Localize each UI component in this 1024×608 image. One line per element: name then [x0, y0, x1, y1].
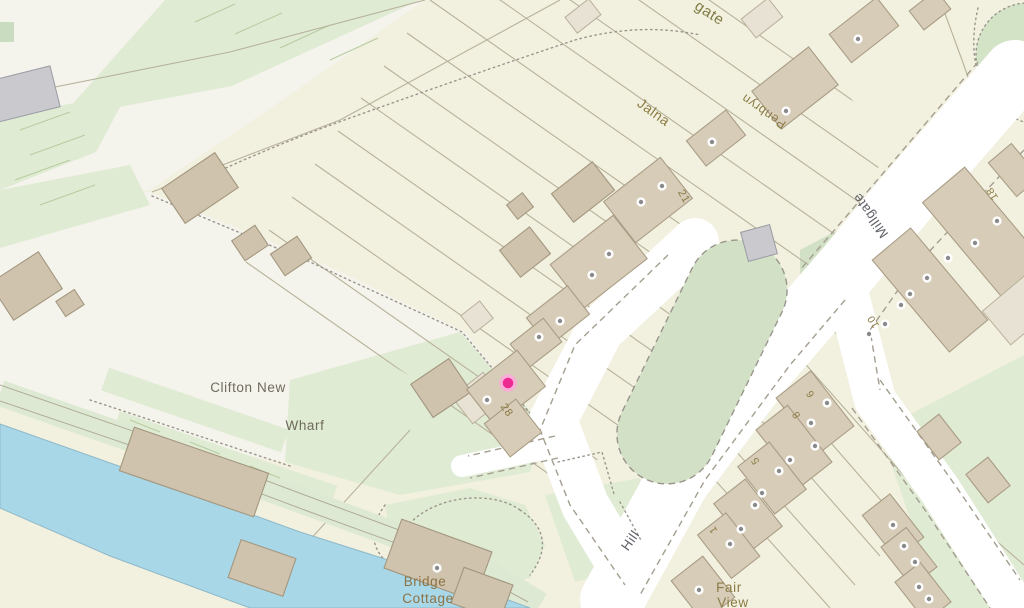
map-canvas[interactable]: gateJalnaPenbryn2128Clifton NewWharfMill…	[0, 0, 1024, 608]
house-label-cottage: Cottage	[402, 591, 453, 606]
map-svg[interactable]: gateJalnaPenbryn2128Clifton NewWharfMill…	[0, 0, 1024, 608]
place-label-clifton-new: Clifton New	[210, 380, 286, 395]
house-label-bridge: Bridge	[404, 574, 447, 589]
place-label-wharf: Wharf	[285, 418, 324, 433]
property-marker[interactable]	[501, 376, 515, 390]
house-label-fair: Fair	[716, 580, 742, 595]
house-label-view: View	[717, 595, 748, 608]
